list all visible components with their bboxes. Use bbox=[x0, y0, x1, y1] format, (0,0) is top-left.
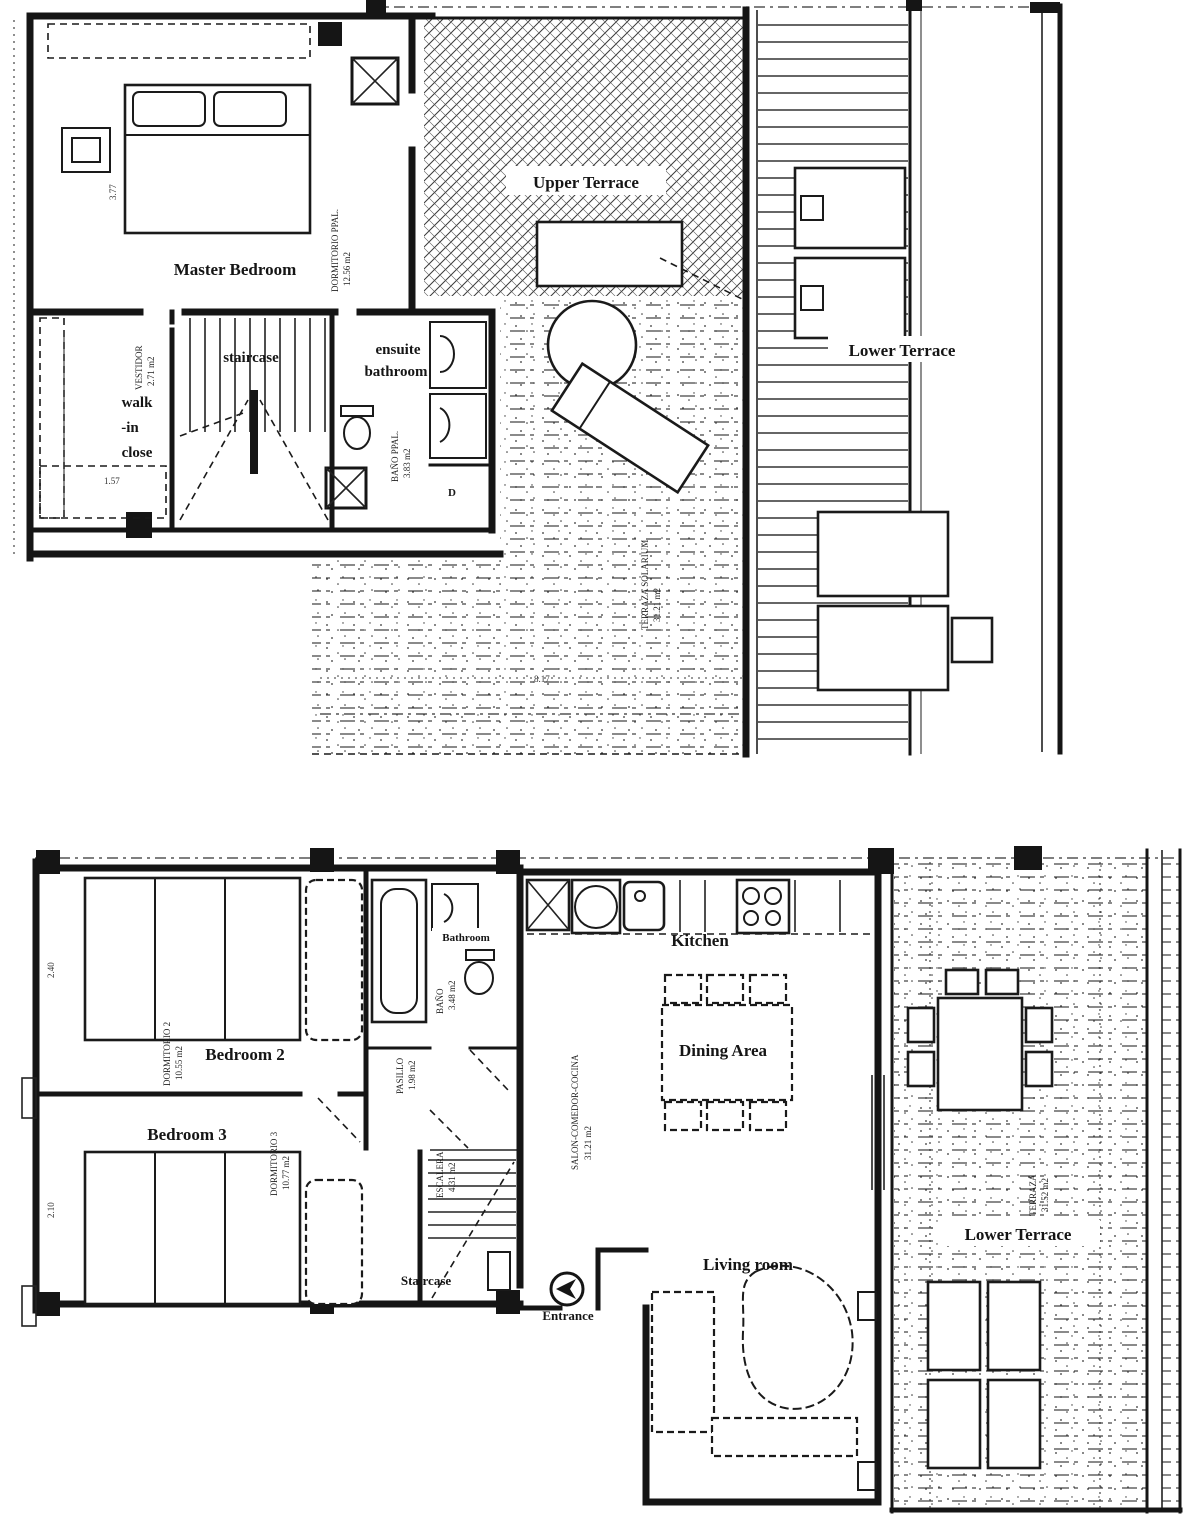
solarium-area-name: TERRAZA SOLARIUM bbox=[640, 540, 650, 630]
lower-terrace-label-upperplan: Lower Terrace bbox=[849, 341, 956, 360]
bathroom-area-value: 3.48 m2 bbox=[447, 980, 457, 1010]
kitchen-counter bbox=[527, 880, 875, 934]
walkin-label-line1: walk bbox=[122, 395, 154, 411]
column bbox=[906, 0, 922, 11]
shaft-box bbox=[352, 58, 398, 104]
floorplan-scan-page: Master Bedroom staircase ensuite bathroo… bbox=[0, 0, 1200, 1537]
bedroom2-area-name: DORMITORIO 2 bbox=[162, 1022, 172, 1086]
master-bedroom-label: Master Bedroom bbox=[174, 260, 297, 279]
bathroom-area-name: BAÑO bbox=[435, 988, 445, 1014]
living-room-furniture bbox=[652, 1266, 857, 1456]
bathroom-label: Bathroom bbox=[442, 932, 489, 944]
terrace-decking-edge bbox=[1162, 862, 1180, 1512]
floorplan-drawing: Master Bedroom staircase ensuite bathroo… bbox=[0, 0, 1200, 1537]
living-room-label: Living room bbox=[703, 1255, 793, 1274]
bedroom2-area-value: 10.55 m2 bbox=[174, 1046, 184, 1080]
upper-terrace-label: Upper Terrace bbox=[533, 173, 639, 192]
bedroom2-label: Bedroom 2 bbox=[205, 1045, 285, 1064]
solarium-area-value: 31.21 m2 bbox=[652, 588, 662, 622]
dim-377: 3.77 bbox=[108, 184, 118, 200]
kitchen-label: Kitchen bbox=[671, 931, 729, 950]
dim-157: 1.57 bbox=[104, 476, 120, 486]
salon-area-value: 31.21 m2 bbox=[583, 1126, 593, 1160]
column bbox=[366, 0, 386, 13]
terrace-area-name: TERRAZA bbox=[1028, 1174, 1038, 1216]
entrance-marker bbox=[551, 1273, 583, 1305]
terrace-area-value: 31.52 m2 bbox=[1040, 1178, 1050, 1212]
column bbox=[1030, 2, 1060, 13]
stairs-area-value: 4.31 m2 bbox=[447, 1162, 457, 1192]
bedroom3-area-name: DORMITORIO 3 bbox=[269, 1131, 279, 1196]
entrance-label: Entrance bbox=[542, 1308, 594, 1323]
dim-240: 2.40 bbox=[46, 962, 56, 978]
stairs-area-name: ESCALERA bbox=[435, 1151, 445, 1198]
master-bed bbox=[125, 85, 310, 233]
salon-area-name: SALON-COMEDOR-COCINA bbox=[570, 1054, 580, 1170]
master-area-name: DORMITORIO PPAL. bbox=[330, 209, 340, 292]
walkin-shelving bbox=[40, 318, 166, 518]
ensuite-label-line2: bathroom bbox=[364, 364, 428, 380]
column bbox=[318, 22, 342, 46]
dim-817: 8.17 bbox=[534, 674, 550, 684]
ensuite-label-line1: ensuite bbox=[376, 342, 421, 358]
chaise-bedroom3 bbox=[306, 1180, 362, 1304]
hall-area-name: PASILLO bbox=[395, 1057, 405, 1094]
bed-3 bbox=[85, 1152, 300, 1304]
master-area-value: 12.56 m2 bbox=[342, 252, 352, 286]
staircase-label: staircase bbox=[223, 350, 279, 366]
dim-210: 2.10 bbox=[46, 1202, 56, 1218]
walkin-area-name: VESTIDOR bbox=[134, 346, 144, 391]
ensuite-area-name: BAÑO PPAL. bbox=[390, 431, 400, 482]
nightstand bbox=[62, 128, 110, 172]
ensuite-area-value: 3.83 m2 bbox=[402, 448, 412, 478]
walkin-area-value: 2.71 m2 bbox=[146, 356, 156, 386]
dining-area-label: Dining Area bbox=[679, 1041, 768, 1060]
wardrobe bbox=[48, 24, 310, 58]
door-swing-bedroom3 bbox=[318, 1098, 360, 1142]
chaise-bedroom2 bbox=[306, 880, 362, 1040]
deck-speckle-left bbox=[312, 558, 502, 754]
bed-2 bbox=[85, 878, 300, 1040]
hall-area-value: 1.98 m2 bbox=[407, 1060, 417, 1090]
upper-staircase bbox=[180, 318, 328, 520]
lower-floor-plan: Bedroom 2 Bedroom 3 Bathroom Kitchen Din… bbox=[22, 846, 1180, 1512]
terrace-table bbox=[537, 222, 682, 286]
upper-floor-plan: Master Bedroom staircase ensuite bathroo… bbox=[14, 0, 1060, 754]
walkin-label-line3: close bbox=[122, 445, 153, 461]
bedroom3-label: Bedroom 3 bbox=[147, 1125, 227, 1144]
entrance-arrow-icon bbox=[556, 1279, 576, 1299]
bedroom3-area-value: 10.77 m2 bbox=[281, 1156, 291, 1190]
staircase-label-lower: Staircase bbox=[401, 1273, 452, 1288]
column bbox=[126, 512, 152, 538]
shower-mark: D bbox=[448, 487, 456, 499]
walkin-label-line2: -in bbox=[121, 420, 139, 436]
lower-terrace-label: Lower Terrace bbox=[965, 1225, 1072, 1244]
